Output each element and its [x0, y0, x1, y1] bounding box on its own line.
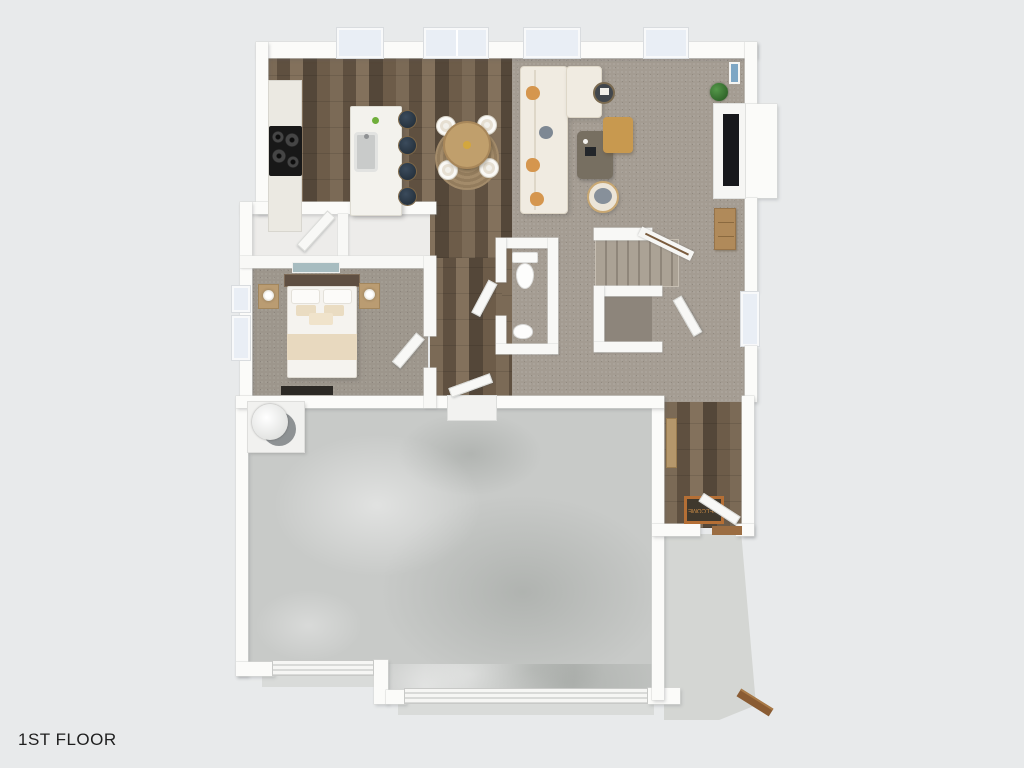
sofa-pillow-orange-3	[530, 192, 544, 206]
sofa-pillow-gray	[539, 126, 553, 139]
page-title: 1ST FLOOR	[18, 730, 117, 750]
bar-stool-4	[399, 188, 416, 205]
wall-left-garage	[236, 396, 248, 676]
ottoman	[603, 117, 633, 153]
bed-blanket	[287, 334, 357, 360]
floor-plan-scene: WELCOME 1ST FLOOR	[0, 0, 1024, 768]
wall-bedroom-right-a	[424, 256, 436, 336]
side-table-book	[600, 88, 609, 95]
media-cabinet	[714, 208, 736, 250]
coffee-table-cup	[583, 139, 588, 144]
garage-door-large	[404, 688, 648, 704]
wall-powder-left-a	[496, 238, 506, 282]
wall-garage-bottom-left	[236, 662, 274, 676]
lamp-right	[364, 289, 375, 300]
toilet-tank	[512, 252, 538, 263]
kitchen-window-1	[337, 28, 383, 58]
coffee-table-laptop	[585, 147, 596, 156]
living-window-right	[741, 292, 759, 346]
wall-closet-top	[594, 286, 662, 296]
bed-pillow-left	[291, 289, 320, 304]
tv-niche-bumpout	[745, 104, 777, 198]
lamp-left	[263, 290, 274, 301]
sofa-pillow-orange-2	[526, 158, 540, 172]
cabinet-drawer-line	[718, 222, 734, 223]
garage-apron-right	[398, 704, 654, 715]
bedroom-art	[292, 262, 340, 273]
bed-pillow-accent-center	[309, 313, 333, 325]
understair-closet-floor	[604, 296, 652, 342]
wall-garage-bottom-mid	[386, 690, 406, 704]
bed-pillow-right	[323, 289, 352, 304]
wall-right-lower	[745, 346, 757, 402]
garage-apron-left	[262, 676, 378, 687]
wall-closet-bottom	[594, 342, 662, 352]
wall-art-frame	[729, 62, 740, 84]
bar-stool-2	[399, 137, 416, 154]
garage-door-threshold	[448, 396, 496, 420]
front-door-threshold	[712, 526, 742, 535]
wall-utility-divider	[338, 214, 348, 258]
wall-garage-top-right	[494, 396, 664, 408]
bedroom-window-2	[232, 316, 250, 360]
wall-right-mid	[745, 198, 757, 292]
wall-right-upper	[745, 42, 757, 104]
wall-entry-right	[742, 396, 754, 536]
garage-floor	[248, 408, 652, 664]
water-heater-top	[252, 404, 288, 440]
stove-cooktop	[269, 126, 302, 176]
wall-garage-right	[652, 396, 664, 700]
cabinet-drawer-line2	[718, 236, 734, 237]
window-divider	[456, 30, 458, 56]
pedestal-sink	[513, 324, 533, 339]
table-centerpiece	[463, 141, 471, 149]
living-window-top-2	[644, 28, 688, 58]
sink-faucet	[364, 134, 369, 139]
bar-stool-3	[399, 163, 416, 180]
wall-powder-right	[548, 238, 558, 354]
kitchen-slider-window	[424, 28, 488, 58]
wall-entry-bottom	[652, 524, 700, 536]
potted-plant	[710, 83, 728, 101]
wall-bedroom-right-b	[424, 368, 436, 408]
armchair-cushion	[594, 188, 612, 204]
bedroom-window-1	[232, 286, 250, 312]
bar-stool-1	[399, 111, 416, 128]
tv-screen	[723, 114, 739, 186]
wall-powder-bottom	[496, 344, 558, 354]
wall-left-kitchen	[256, 42, 268, 214]
green-apple	[372, 117, 379, 124]
bedroom-dresser	[281, 386, 333, 395]
sofa-pillow-orange-1	[526, 86, 540, 100]
garage-floor-lower	[386, 664, 652, 690]
living-window-top-1	[524, 28, 580, 58]
entry-bench	[666, 418, 677, 468]
garage-door-small	[272, 660, 374, 676]
